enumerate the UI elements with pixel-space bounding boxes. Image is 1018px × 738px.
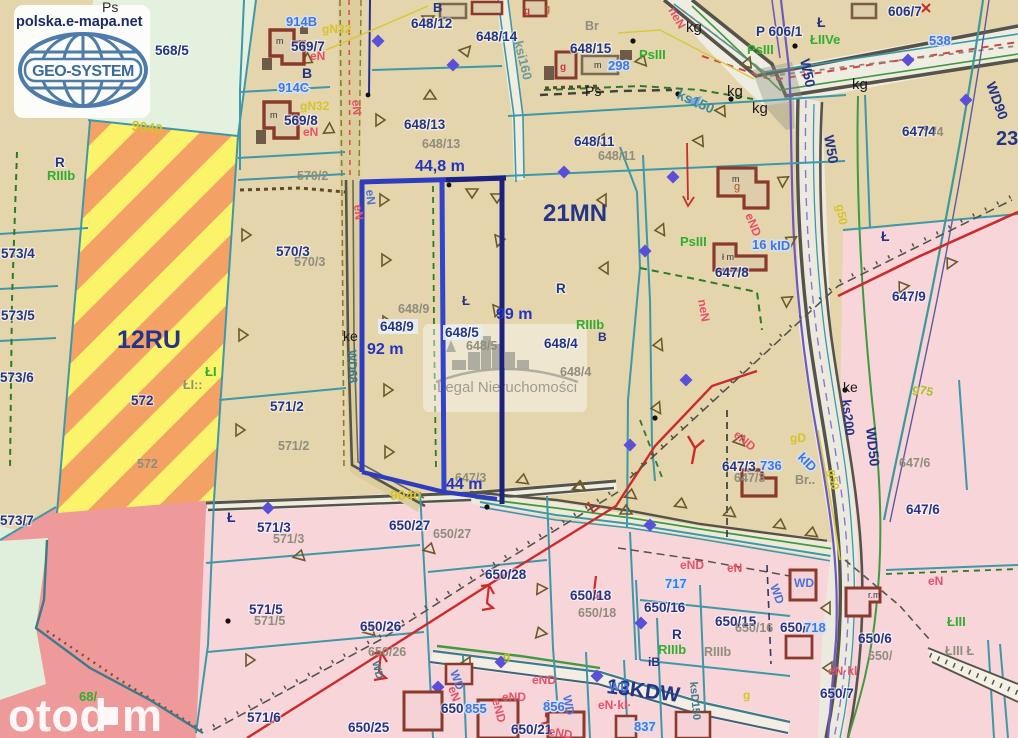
svg-text:99 m: 99 m (496, 306, 532, 323)
svg-text:571/5: 571/5 (254, 614, 285, 628)
svg-text:647/9: 647/9 (892, 289, 926, 304)
svg-text:eN: eN (351, 204, 366, 221)
svg-text:eN: eN (303, 125, 318, 139)
svg-text:Ł: Ł (462, 293, 470, 308)
svg-text:650/27: 650/27 (389, 518, 430, 533)
svg-text:PsIII: PsIII (747, 42, 774, 57)
svg-text:44 m: 44 m (446, 476, 482, 493)
svg-text:648/5: 648/5 (466, 339, 497, 353)
svg-text:ke: ke (343, 328, 358, 344)
svg-text:m: m (122, 690, 162, 738)
svg-text:Legal Nieruchomości: Legal Nieruchomości (437, 379, 577, 396)
svg-text:648/4: 648/4 (560, 365, 591, 379)
svg-text:571/2: 571/2 (278, 439, 309, 453)
svg-text:650/26: 650/26 (360, 619, 402, 634)
svg-text:648/13: 648/13 (404, 117, 446, 132)
svg-text:568/5: 568/5 (155, 43, 189, 58)
svg-text:718: 718 (804, 620, 826, 635)
svg-text:Ł: Ł (881, 228, 890, 244)
svg-text:647/6: 647/6 (899, 456, 930, 470)
svg-text:648/11: 648/11 (574, 134, 615, 149)
svg-text:RIIIb: RIIIb (47, 168, 75, 183)
svg-text:573/4: 573/4 (1, 246, 35, 261)
svg-text:650/: 650/ (868, 649, 893, 663)
svg-text:eN: eN (310, 49, 325, 63)
svg-text:/4: /4 (933, 125, 943, 139)
svg-text:606/7: 606/7 (888, 4, 922, 19)
svg-text:650/16: 650/16 (735, 621, 773, 635)
svg-text:650/18: 650/18 (570, 588, 612, 603)
svg-text:B: B (598, 330, 607, 344)
svg-text:650/27: 650/27 (433, 527, 471, 541)
svg-text:650/16: 650/16 (644, 600, 686, 615)
svg-text:gN32: gN32 (322, 22, 352, 36)
svg-text:PsIII: PsIII (680, 234, 707, 249)
svg-text:647/4: 647/4 (902, 124, 936, 139)
svg-text:717: 717 (665, 576, 687, 591)
svg-text:650/28: 650/28 (485, 567, 527, 582)
svg-text:Ps: Ps (102, 0, 118, 15)
svg-text:647/8: 647/8 (715, 265, 749, 280)
svg-text:837: 837 (634, 719, 656, 734)
svg-text:Ł: Ł (227, 509, 236, 525)
svg-text:eND: eND (502, 690, 526, 704)
svg-text:16: 16 (752, 237, 766, 252)
svg-text:gN32: gN32 (300, 99, 330, 113)
svg-text:650/18: 650/18 (578, 606, 616, 620)
svg-text:650/: 650/ (780, 620, 807, 635)
svg-text:571/6: 571/6 (247, 710, 281, 725)
svg-text:92 m: 92 m (367, 341, 403, 358)
svg-text:kg: kg (752, 100, 768, 117)
svg-text:573/5: 573/5 (1, 308, 35, 323)
svg-text:eND: eND (680, 558, 704, 572)
svg-text:573/6: 573/6 (0, 370, 34, 385)
svg-text:12RU: 12RU (117, 326, 181, 354)
svg-text:eN·kl: eN·kl (828, 664, 857, 678)
svg-text:m: m (594, 60, 602, 70)
svg-text:648/12: 648/12 (411, 16, 452, 31)
svg-text:570/2: 570/2 (297, 169, 328, 183)
svg-text:R: R (556, 281, 566, 296)
svg-text:RIIIb: RIIIb (658, 642, 686, 657)
svg-text:648/4: 648/4 (544, 336, 578, 351)
svg-text:44,8 m: 44,8 m (415, 158, 465, 175)
svg-text:gD: gD (790, 431, 806, 445)
svg-text:9040: 9040 (390, 487, 421, 503)
svg-text:ŁIII: ŁIII (947, 614, 966, 629)
svg-text:PsIII: PsIII (639, 47, 666, 62)
svg-text:571/3: 571/3 (273, 532, 304, 546)
svg-text:ŁI::: ŁI:: (183, 378, 202, 392)
svg-text:WD: WD (609, 680, 629, 694)
svg-text:RIIIb: RIIIb (704, 645, 731, 659)
svg-text:23: 23 (996, 128, 1018, 150)
svg-text:648/13: 648/13 (422, 137, 460, 151)
svg-text:m: m (276, 36, 284, 46)
svg-text:kg: kg (727, 83, 743, 100)
svg-text:B: B (302, 65, 312, 81)
svg-text:kg: kg (852, 76, 868, 93)
svg-text:650: 650 (441, 701, 464, 716)
svg-text:914C: 914C (278, 80, 310, 95)
svg-text:WD68: WD68 (345, 350, 360, 384)
svg-text:650/7: 650/7 (820, 686, 854, 701)
svg-text:650/25: 650/25 (348, 720, 390, 735)
svg-text:Br: Br (585, 19, 599, 33)
svg-text:GEO-SYSTEM: GEO-SYSTEM (32, 63, 134, 80)
svg-text:21MN: 21MN (543, 200, 607, 227)
svg-text:eND: eND (532, 673, 556, 687)
svg-text:r.m: r.m (868, 590, 881, 600)
svg-text:polska.e-mapa.net: polska.e-mapa.net (16, 14, 143, 30)
svg-text:570/3: 570/3 (294, 255, 325, 269)
svg-text:914B: 914B (286, 14, 317, 29)
svg-text:650/21: 650/21 (511, 722, 553, 737)
svg-text:648/11: 648/11 (598, 149, 636, 163)
svg-text:B: B (433, 0, 442, 15)
svg-text:538: 538 (929, 33, 951, 48)
svg-text:ke: ke (843, 379, 858, 395)
svg-text:eN: eN (928, 574, 943, 588)
svg-text:ŁIIVe: ŁIIVe (810, 32, 840, 47)
svg-text:otod: otod (8, 690, 107, 738)
svg-text:g: g (560, 62, 566, 73)
svg-text:Ps: Ps (585, 83, 601, 99)
svg-text:648/5: 648/5 (445, 325, 479, 340)
svg-text:ŁI: ŁI (205, 364, 217, 379)
svg-text:648/9: 648/9 (380, 319, 414, 334)
svg-text:eN: eN (363, 189, 378, 206)
svg-text:ł m: ł m (722, 252, 734, 262)
svg-text:736: 736 (760, 458, 782, 473)
svg-text:g: g (743, 688, 750, 702)
svg-text:iB: iB (648, 655, 660, 669)
svg-text:650/6: 650/6 (858, 631, 892, 646)
svg-text:R: R (672, 627, 682, 642)
svg-text:kID: kID (770, 238, 790, 253)
svg-text:648/15: 648/15 (570, 41, 612, 56)
svg-text:m: m (732, 174, 740, 184)
svg-text:P 606/1: P 606/1 (756, 24, 803, 39)
svg-text:571/2: 571/2 (270, 399, 304, 414)
svg-text:eN: eN (349, 99, 364, 116)
svg-text:eN·kl·: eN·kl· (598, 698, 631, 712)
svg-text:m: m (270, 110, 278, 120)
svg-text:572: 572 (137, 457, 158, 471)
svg-text:g: g (503, 649, 510, 663)
svg-text:572: 572 (131, 393, 154, 408)
svg-text:ŁIII Ł: ŁIII Ł (945, 644, 975, 658)
svg-text:298: 298 (608, 58, 630, 73)
svg-text:g: g (524, 6, 530, 17)
svg-text:g: g (544, 3, 550, 15)
svg-text:573/7: 573/7 (0, 513, 34, 528)
svg-text:Br..: Br.. (795, 473, 815, 487)
svg-text:647/3: 647/3 (734, 471, 765, 485)
svg-text:650/26: 650/26 (368, 645, 406, 659)
svg-text:855: 855 (465, 701, 487, 716)
svg-text:WD: WD (794, 576, 814, 590)
svg-text:647/6: 647/6 (906, 502, 940, 517)
svg-text:648/9: 648/9 (398, 302, 429, 316)
svg-text:eN: eN (727, 561, 742, 575)
svg-text:Ł: Ł (817, 14, 826, 30)
